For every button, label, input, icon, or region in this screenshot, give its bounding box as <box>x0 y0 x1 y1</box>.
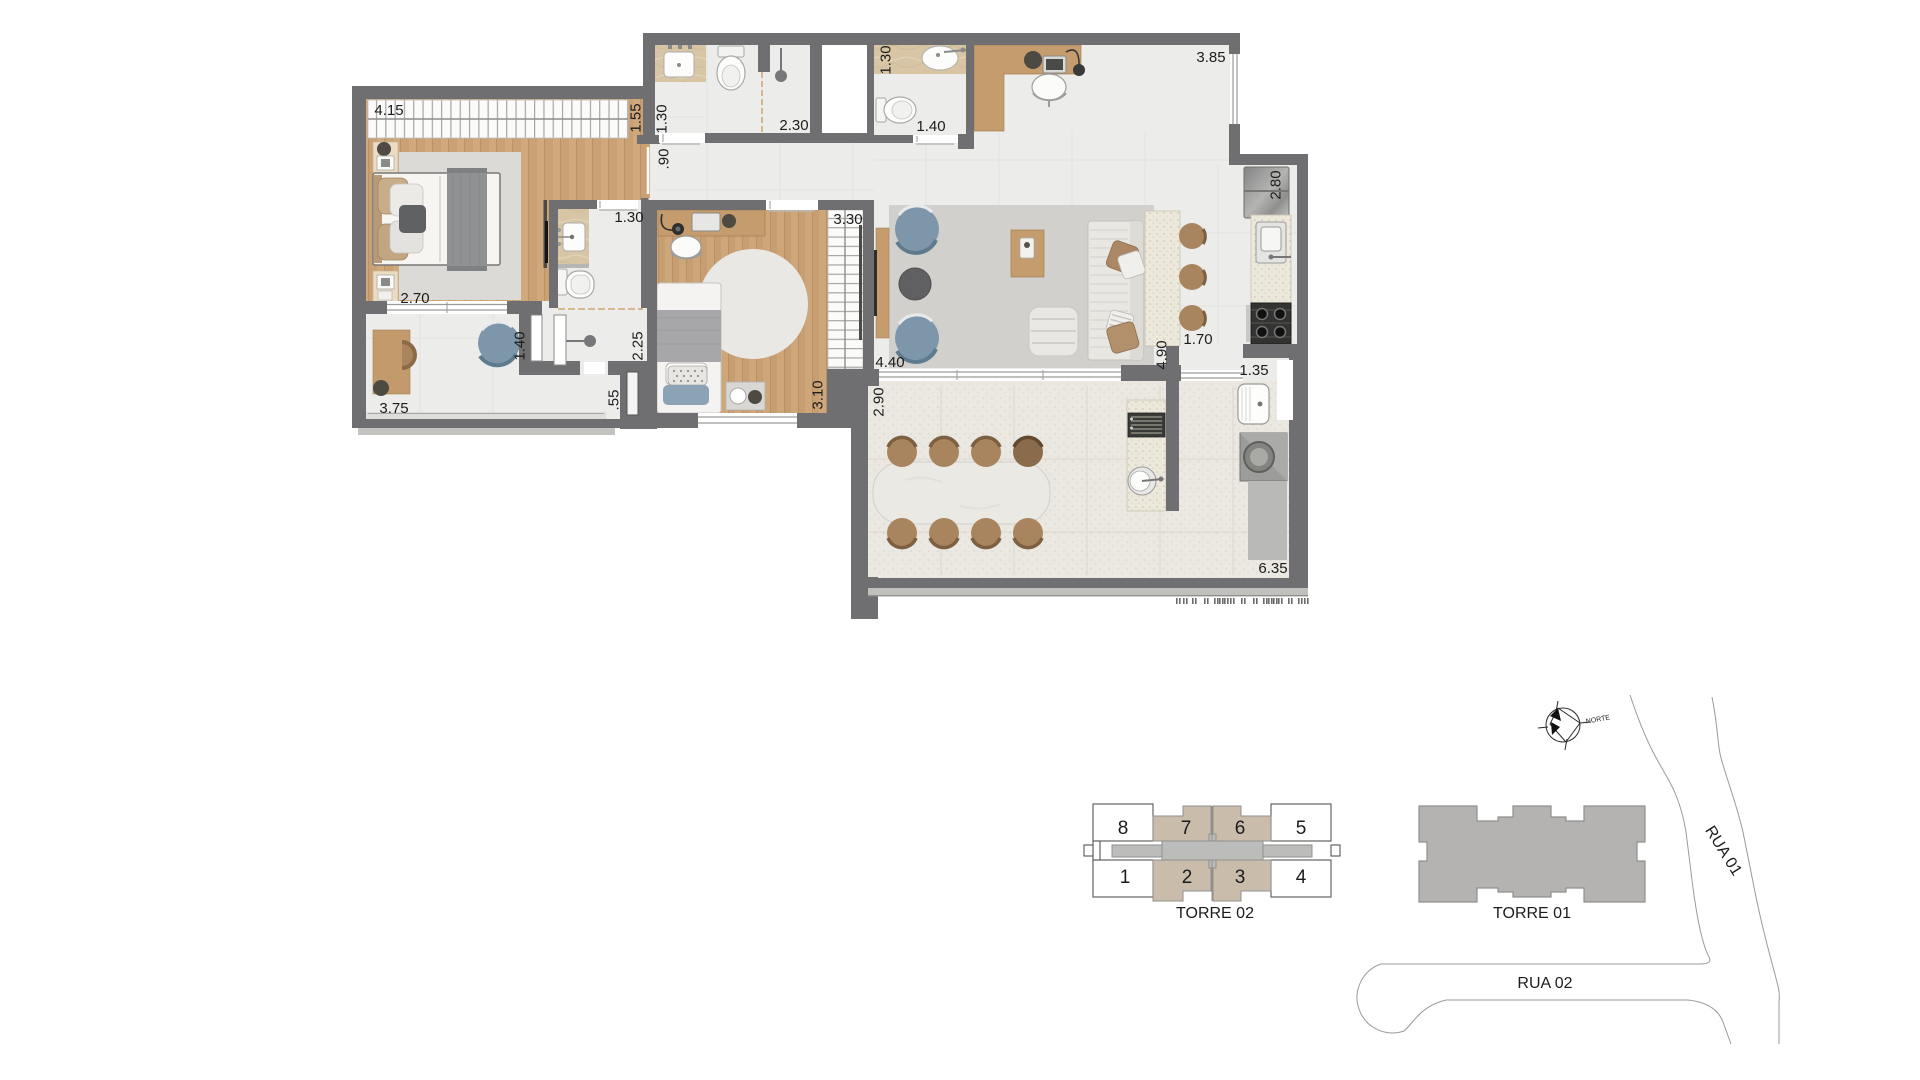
svg-text:2.70: 2.70 <box>400 290 429 307</box>
svg-text:7: 7 <box>1181 818 1192 839</box>
svg-text:3.75: 3.75 <box>379 400 408 417</box>
svg-text:1.35: 1.35 <box>1239 362 1268 379</box>
svg-text:3.30: 3.30 <box>833 211 862 228</box>
svg-text:2.80: 2.80 <box>1268 170 1285 199</box>
svg-text:1.30: 1.30 <box>654 104 671 133</box>
svg-text:3.85: 3.85 <box>1196 49 1225 66</box>
svg-text:2.30: 2.30 <box>779 117 808 134</box>
svg-text:2: 2 <box>1182 867 1193 888</box>
svg-text:1: 1 <box>1120 867 1131 888</box>
svg-text:1.30: 1.30 <box>614 209 643 226</box>
svg-text:NORTE: NORTE <box>1585 714 1611 725</box>
svg-text:2.90: 2.90 <box>871 387 888 416</box>
svg-text:RUA 01: RUA 01 <box>1701 823 1745 879</box>
svg-text:TORRE 02: TORRE 02 <box>1176 905 1254 922</box>
svg-text:6: 6 <box>1235 818 1246 839</box>
svg-text:1.40: 1.40 <box>916 118 945 135</box>
svg-text:1.40: 1.40 <box>512 331 529 360</box>
svg-text:3.10: 3.10 <box>810 380 827 409</box>
svg-text:1.70: 1.70 <box>1183 331 1212 348</box>
svg-text:1.30: 1.30 <box>878 45 895 74</box>
svg-text:1.55: 1.55 <box>628 103 645 132</box>
svg-text:TORRE 01: TORRE 01 <box>1493 905 1571 922</box>
svg-text:4.15: 4.15 <box>374 102 403 119</box>
svg-text:6.35: 6.35 <box>1258 560 1287 577</box>
svg-text:3: 3 <box>1235 867 1246 888</box>
svg-text:.90: .90 <box>656 149 673 170</box>
svg-text:5: 5 <box>1296 818 1307 839</box>
svg-text:.55: .55 <box>606 390 623 411</box>
svg-text:4.90: 4.90 <box>1154 340 1171 369</box>
svg-text:4: 4 <box>1296 867 1307 888</box>
svg-text:2.25: 2.25 <box>630 331 647 360</box>
svg-text:4.40: 4.40 <box>875 354 904 371</box>
svg-text:8: 8 <box>1118 818 1129 839</box>
svg-text:RUA 02: RUA 02 <box>1517 975 1572 992</box>
